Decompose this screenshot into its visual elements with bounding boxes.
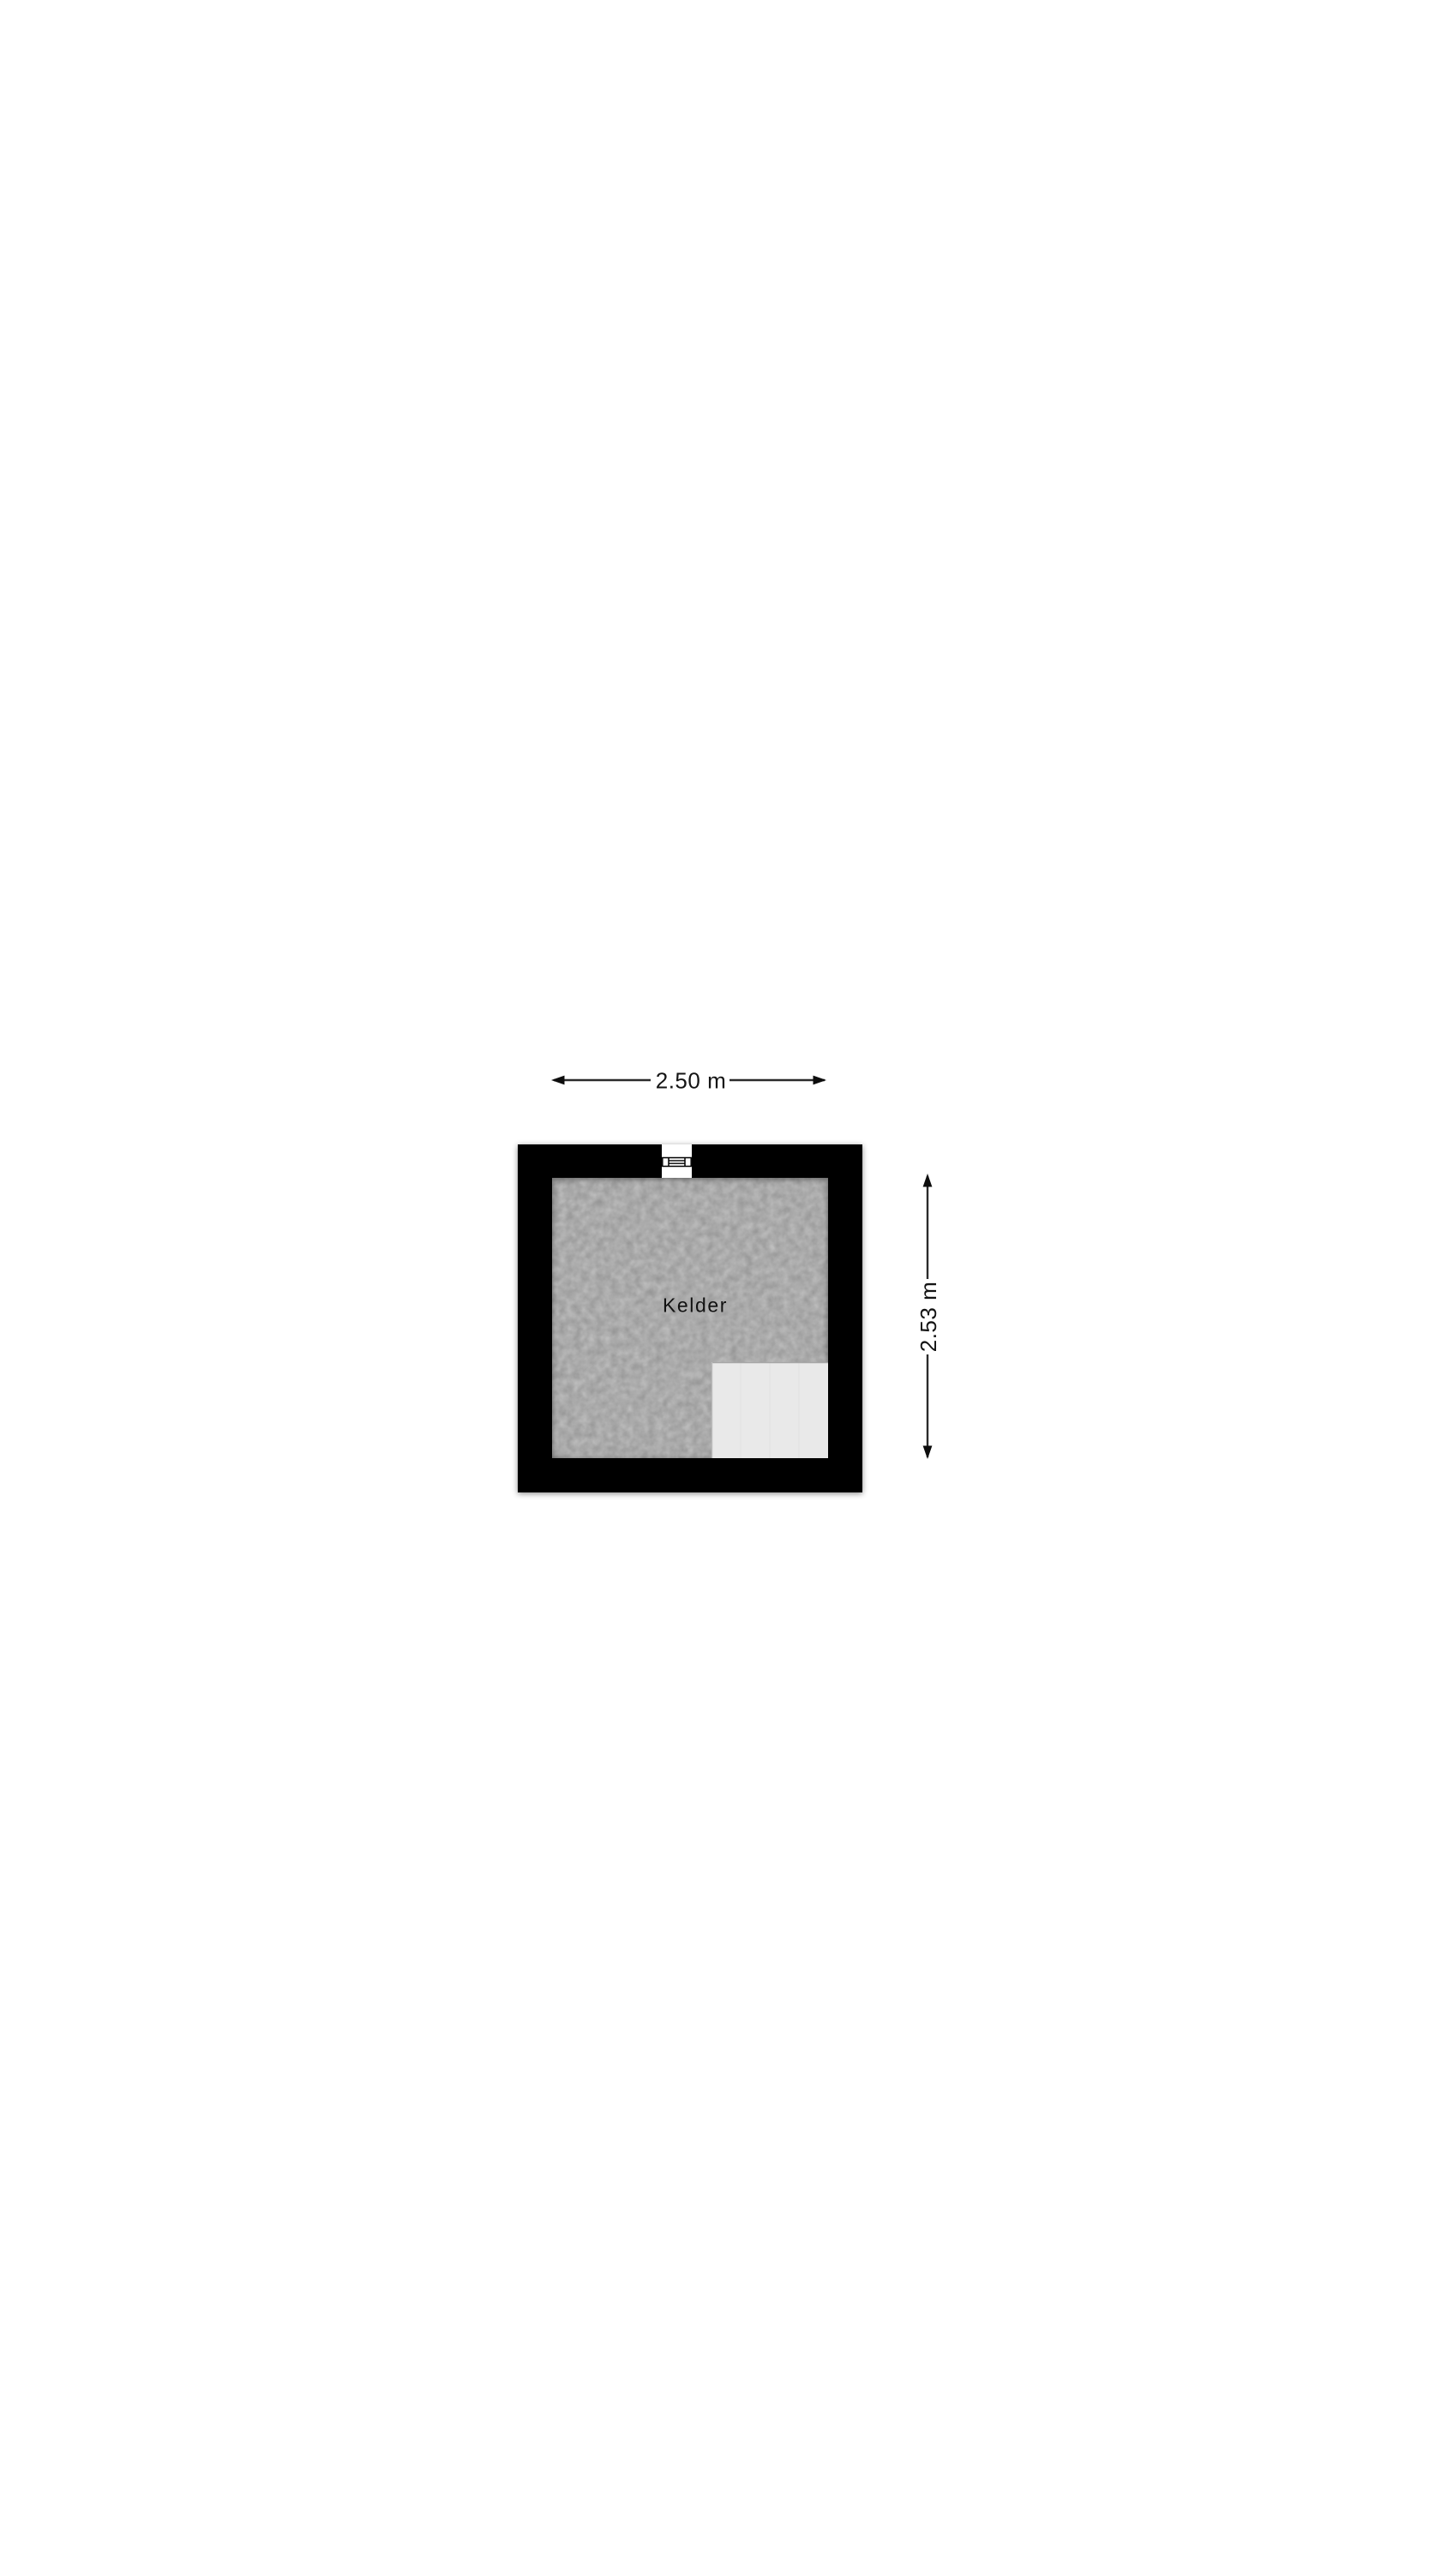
svg-text:Kelder: Kelder <box>663 1294 728 1317</box>
svg-text:2.53 m: 2.53 m <box>916 1282 941 1353</box>
svg-text:2.50 m: 2.50 m <box>656 1068 727 1094</box>
